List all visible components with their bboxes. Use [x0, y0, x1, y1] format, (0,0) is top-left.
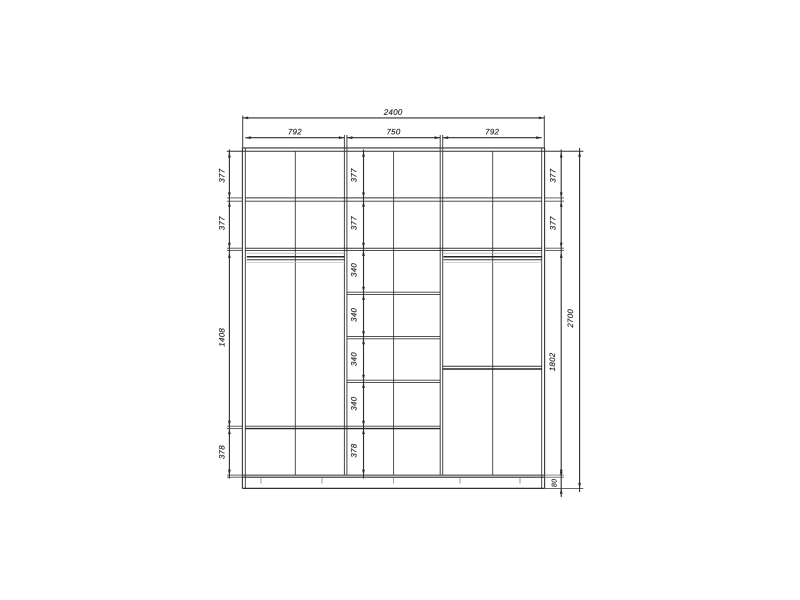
svg-text:1802: 1802 [548, 352, 557, 371]
svg-text:378: 378 [350, 443, 359, 457]
svg-text:340: 340 [350, 263, 359, 277]
svg-text:2400: 2400 [383, 108, 403, 117]
svg-text:80: 80 [552, 479, 559, 487]
svg-text:377: 377 [548, 216, 557, 230]
svg-text:340: 340 [350, 307, 359, 321]
svg-text:377: 377 [548, 168, 557, 182]
svg-text:340: 340 [350, 352, 359, 366]
svg-text:377: 377 [350, 216, 359, 230]
svg-text:377: 377 [218, 216, 227, 230]
svg-text:750: 750 [386, 127, 400, 136]
svg-text:340: 340 [350, 396, 359, 410]
svg-text:792: 792 [288, 127, 302, 136]
svg-text:1408: 1408 [218, 328, 227, 347]
svg-text:377: 377 [218, 168, 227, 182]
svg-text:377: 377 [350, 168, 359, 182]
svg-text:2700: 2700 [566, 309, 575, 329]
svg-text:792: 792 [485, 127, 499, 136]
svg-text:378: 378 [218, 445, 227, 459]
